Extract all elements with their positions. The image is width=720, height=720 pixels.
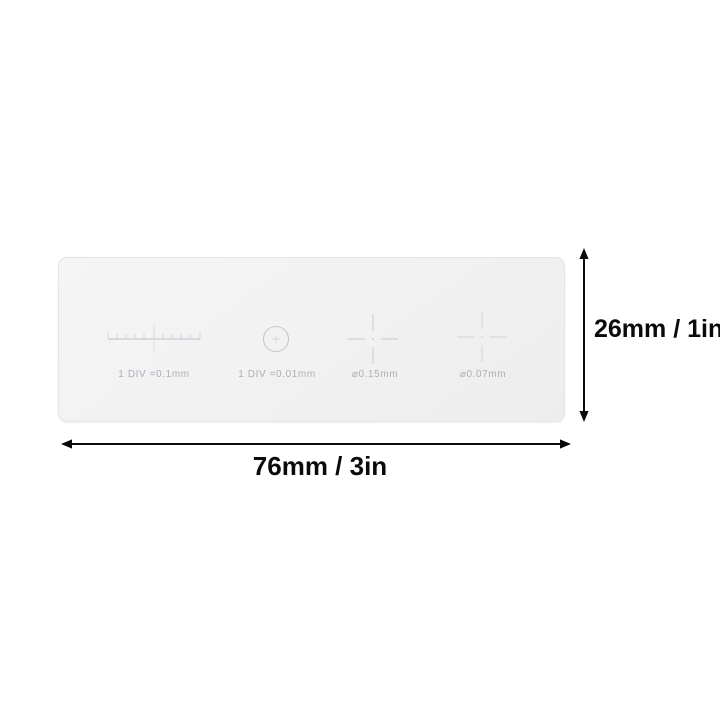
slide-label-crosshair-007: ⌀0.07mm <box>460 369 506 380</box>
height-dimension-arrow <box>573 247 595 423</box>
crosshair-pattern-007 <box>456 311 508 363</box>
height-dimension-label: 26mm / 1in <box>594 315 720 344</box>
width-dimension-label: 76mm / 3in <box>200 451 440 482</box>
product-image-canvas: 1 DIV =0.1mm 1 DIV =0.01mm ⌀0.15mm ⌀0.07… <box>0 0 720 720</box>
slide-label-circle: 1 DIV =0.01mm <box>238 369 316 380</box>
circle-reticle-pattern <box>261 324 291 354</box>
ruler-scale-pattern <box>105 322 203 356</box>
slide-label-crosshair-015: ⌀0.15mm <box>352 369 398 380</box>
slide-label-ruler: 1 DIV =0.1mm <box>118 369 189 380</box>
crosshair-pattern-015 <box>347 313 399 365</box>
calibration-slide: 1 DIV =0.1mm 1 DIV =0.01mm ⌀0.15mm ⌀0.07… <box>58 257 565 422</box>
